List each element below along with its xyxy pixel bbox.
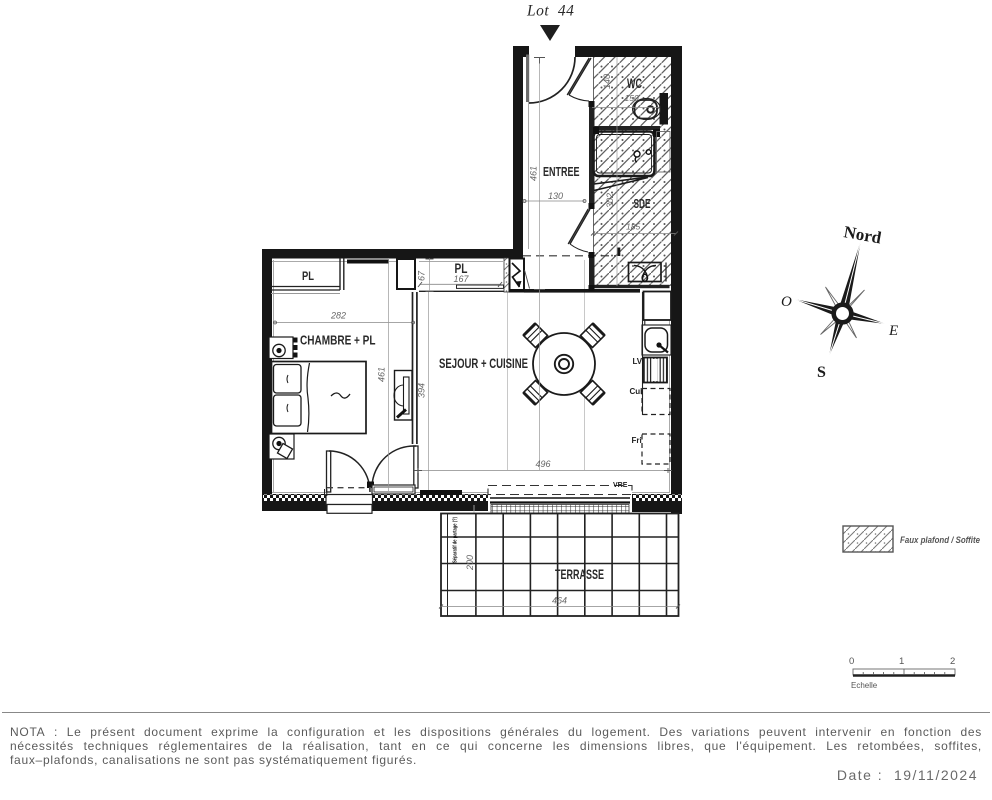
svg-text:O: O <box>781 294 792 310</box>
svg-text:200: 200 <box>465 555 475 571</box>
svg-text:167: 167 <box>454 274 470 284</box>
svg-text:ENTREE: ENTREE <box>543 164 580 179</box>
svg-text:Nord: Nord <box>842 222 883 247</box>
svg-text:67: 67 <box>417 270 427 281</box>
svg-text:394: 394 <box>417 383 427 398</box>
svg-text:140: 140 <box>602 74 612 89</box>
svg-text:PL: PL <box>302 269 314 283</box>
svg-text:Fri: Fri <box>632 436 642 445</box>
svg-text:CHAMBRE + PL: CHAMBRE + PL <box>300 334 376 348</box>
svg-text:130: 130 <box>548 191 563 201</box>
svg-text:TERRASSE: TERRASSE <box>555 566 604 582</box>
svg-text:Echelle: Echelle <box>851 681 878 690</box>
svg-text:461: 461 <box>377 367 387 382</box>
svg-text:1: 1 <box>899 656 904 667</box>
svg-text:185: 185 <box>626 222 640 232</box>
svg-text:464: 464 <box>552 596 567 606</box>
svg-text:0: 0 <box>849 656 854 667</box>
svg-text:VRE: VRE <box>613 482 628 489</box>
svg-text:S: S <box>817 364 826 381</box>
svg-text:Lot 44: Lot 44 <box>526 3 574 20</box>
svg-text:Faux plafond / Soffite: Faux plafond / Soffite <box>900 535 981 546</box>
svg-text:E: E <box>888 323 898 339</box>
svg-text:302: 302 <box>605 193 615 208</box>
svg-text:282: 282 <box>330 311 346 321</box>
svg-text:SDE: SDE <box>634 197 651 211</box>
svg-text:2: 2 <box>950 656 955 667</box>
svg-text:496: 496 <box>536 459 551 469</box>
svg-text:WC: WC <box>627 76 642 91</box>
svg-text:461: 461 <box>529 166 539 181</box>
svg-text:Cul: Cul <box>630 387 643 396</box>
svg-text:SEJOUR + CUISINE: SEJOUR + CUISINE <box>439 356 528 371</box>
svg-text:150: 150 <box>625 93 639 103</box>
svg-text:LV: LV <box>633 357 643 366</box>
svg-text:Séparatif de partage (?): Séparatif de partage (?) <box>453 517 459 563</box>
